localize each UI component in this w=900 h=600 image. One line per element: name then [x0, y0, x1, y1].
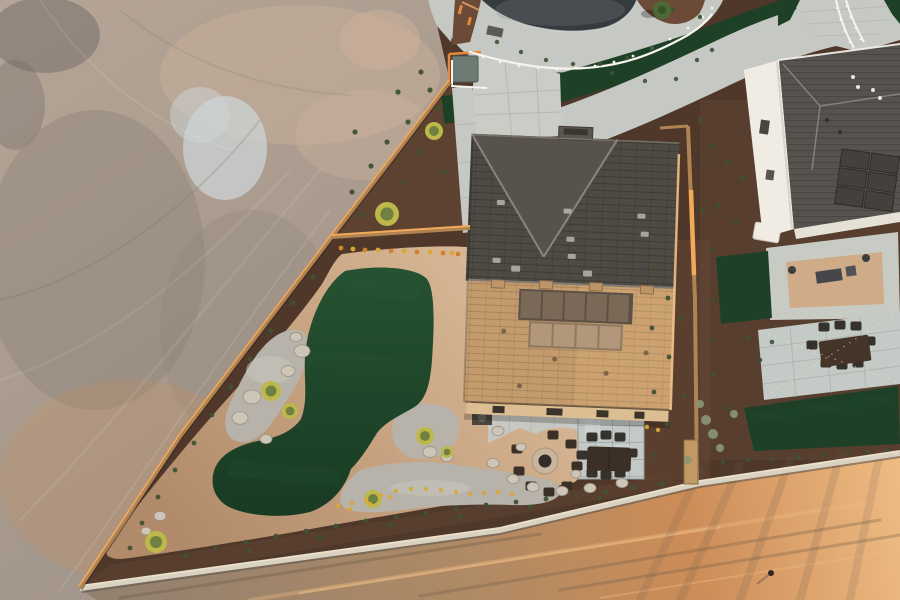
railing-post	[556, 68, 559, 71]
small-plant	[724, 406, 729, 411]
gravel-highlight	[390, 480, 470, 496]
yellow-flower	[454, 490, 458, 494]
neighbor-dining-chair	[851, 322, 862, 331]
small-plant	[248, 357, 253, 362]
yellow-green-shrub	[416, 427, 434, 445]
small-plant	[708, 338, 713, 343]
railing-post	[482, 56, 485, 59]
small-plant	[229, 385, 234, 390]
yellow-flower	[645, 425, 649, 429]
small-plant	[388, 523, 393, 528]
small-plant	[424, 511, 429, 516]
small-plant	[318, 536, 323, 541]
small-plant	[311, 275, 316, 280]
small-plant	[758, 358, 763, 363]
small-plant	[702, 158, 707, 163]
solar-panel-array-lower	[528, 321, 623, 351]
yellow-flower	[368, 502, 372, 506]
small-plant	[712, 373, 717, 378]
yellow-flower	[388, 495, 392, 499]
fire-pit-chair	[514, 467, 525, 476]
neighbor-dining-chair	[807, 341, 818, 350]
fire-pit-chair	[572, 462, 583, 471]
ramp-post	[836, 7, 839, 10]
small-plant	[884, 448, 888, 452]
ramp-post	[855, 27, 858, 30]
small-plant	[708, 248, 713, 253]
neighbor-dining-chair	[819, 323, 830, 332]
boulder	[260, 434, 272, 443]
small-plant	[269, 329, 274, 334]
small-plant	[192, 441, 197, 446]
yellow-flower	[424, 487, 428, 491]
yellow-flower	[379, 493, 383, 497]
yellow-flower	[402, 249, 407, 254]
small-plant	[667, 355, 672, 360]
small-plant	[394, 515, 399, 520]
small-plant	[574, 494, 579, 499]
railing-post	[537, 67, 540, 70]
small-plant	[625, 56, 629, 60]
small-plant	[698, 15, 702, 19]
fire-pit-chair	[548, 431, 559, 440]
small-plant	[334, 524, 339, 529]
fire-pit-chair	[544, 488, 555, 497]
small-plant	[598, 496, 603, 501]
railing-post	[711, 7, 714, 10]
small-plant	[665, 422, 670, 427]
small-plant	[528, 505, 533, 510]
small-plant	[716, 203, 721, 208]
boulder	[556, 486, 568, 495]
small-plant	[441, 169, 446, 174]
small-plant	[653, 266, 658, 271]
small-plant	[746, 458, 750, 462]
small-plant	[484, 503, 489, 508]
dining-chair	[577, 451, 588, 460]
small-plant	[359, 212, 364, 217]
yellow-flower	[394, 489, 398, 493]
small-plant	[405, 119, 410, 124]
yellow-flower	[428, 250, 433, 255]
yellow-flower	[409, 487, 413, 491]
dining-chair	[615, 433, 626, 442]
small-plant	[682, 394, 687, 399]
grill-cart	[845, 265, 856, 276]
small-plant	[248, 549, 253, 554]
sage-plant	[716, 444, 724, 452]
orange-flower	[389, 249, 394, 254]
small-plant	[214, 546, 219, 551]
small-plant	[427, 87, 432, 92]
yellow-flower	[496, 490, 500, 494]
small-plant	[368, 163, 373, 168]
fire-pit-chair	[566, 440, 577, 449]
boulder	[492, 426, 504, 435]
yellow-green-shrub	[375, 202, 399, 226]
small-plant	[796, 455, 800, 459]
yellow-flower	[350, 501, 354, 505]
aerial-photo: Aerial drone view at golden hour of a ne…	[0, 0, 900, 600]
yellow-green-shrub	[145, 531, 167, 553]
orange-flower	[415, 250, 420, 255]
small-plant	[821, 453, 825, 457]
small-plant	[746, 336, 751, 341]
small-plant	[544, 497, 549, 502]
neighbor-dining-chair	[835, 321, 846, 330]
railing-post	[575, 67, 578, 70]
small-plant	[604, 490, 609, 495]
small-plant	[679, 316, 684, 321]
yellow-flower	[351, 247, 356, 252]
orange-flower	[363, 248, 368, 253]
small-plant	[660, 482, 665, 487]
small-plant	[304, 529, 309, 534]
small-plant	[435, 105, 440, 110]
boulder	[281, 366, 295, 377]
small-plant	[184, 553, 189, 558]
small-plant	[651, 453, 656, 458]
boulder	[571, 470, 581, 478]
yellow-green-shrub	[441, 446, 453, 458]
small-plant	[349, 189, 354, 194]
small-plant	[701, 208, 706, 213]
small-plant	[140, 521, 145, 526]
small-plant	[671, 8, 675, 12]
railing-post	[687, 27, 690, 30]
small-plant	[274, 534, 279, 539]
small-plant	[544, 58, 548, 62]
small-plant	[662, 238, 667, 243]
yellow-flower	[468, 492, 472, 496]
fire-pit-bowl	[539, 455, 552, 468]
small-plant	[128, 546, 133, 551]
small-plant	[571, 62, 575, 66]
yellow-green-shrub	[261, 381, 281, 401]
small-plant	[156, 495, 161, 500]
small-plant	[210, 413, 215, 418]
small-plant	[734, 220, 739, 225]
yellow-flower	[376, 248, 381, 253]
roof-cricket-vent	[564, 128, 588, 135]
dining-chair	[587, 433, 598, 442]
yellow-flower	[348, 507, 352, 511]
fence-return	[660, 126, 688, 128]
yellow-flower	[364, 498, 368, 502]
small-plant	[610, 71, 614, 75]
dining-chair	[601, 471, 612, 480]
small-plant	[598, 62, 602, 66]
ramp-post	[846, 5, 849, 8]
neighbor-house	[744, 44, 900, 239]
small-plant	[710, 144, 715, 149]
main-house	[460, 123, 682, 428]
patio-chair	[862, 254, 870, 262]
small-plant	[650, 326, 655, 331]
sage-plant	[708, 429, 718, 439]
small-plant	[740, 176, 745, 181]
small-plant	[674, 77, 678, 81]
small-plant	[401, 179, 406, 184]
dark-object-on-road	[768, 570, 774, 576]
small-plant	[384, 139, 389, 144]
orange-flower	[456, 252, 461, 257]
boulder	[243, 390, 261, 404]
orange-flower	[339, 246, 344, 251]
ramp-post	[844, 30, 847, 33]
small-plant	[352, 129, 357, 134]
small-plant	[495, 40, 499, 44]
boulder	[527, 482, 539, 491]
yellow-flower	[439, 488, 443, 492]
small-plant	[650, 46, 654, 50]
boulder	[507, 474, 519, 483]
small-plant	[770, 340, 775, 345]
patio-chair	[788, 266, 796, 274]
railing-post	[594, 65, 597, 68]
small-plant	[364, 519, 369, 524]
small-plant	[771, 457, 775, 461]
boulder	[423, 447, 437, 458]
small-plant	[725, 160, 730, 165]
yellow-flower	[336, 504, 340, 508]
small-plant	[695, 58, 699, 62]
sage-plant	[730, 410, 738, 418]
railing-post	[669, 38, 672, 41]
boulder	[154, 511, 166, 520]
small-plant	[710, 48, 714, 52]
boulder	[487, 458, 499, 467]
yellow-flower	[510, 492, 514, 496]
small-plant	[173, 468, 178, 473]
small-plant	[514, 500, 519, 505]
small-plant	[458, 515, 463, 520]
boulder	[290, 332, 302, 341]
small-plant	[846, 451, 850, 455]
dirt-pale-patch	[170, 87, 230, 143]
small-plant	[418, 69, 423, 74]
small-plant	[652, 390, 657, 395]
small-plant	[244, 540, 249, 545]
boulder	[616, 478, 628, 487]
solar-panel-array-upper	[518, 289, 633, 325]
ramp-post	[849, 41, 852, 44]
sage-plant	[684, 456, 692, 464]
ramp-post	[840, 19, 843, 22]
yellow-flower	[482, 491, 486, 495]
small-plant	[643, 79, 647, 83]
sage-plant	[696, 400, 704, 408]
ramp-post	[850, 16, 853, 19]
dining-chair	[601, 431, 612, 440]
railing-post	[632, 55, 635, 58]
small-plant	[666, 296, 671, 301]
ramp-post	[860, 38, 863, 41]
railing-post	[469, 51, 472, 54]
driveway	[468, 58, 562, 141]
small-plant	[866, 450, 870, 454]
sage-plant	[701, 415, 711, 425]
aerial-photo-canvas: Aerial drone view at golden hour of a ne…	[0, 0, 900, 600]
boulder	[584, 483, 596, 492]
dirt-light-patch	[340, 10, 420, 70]
neighbor-window	[765, 169, 774, 180]
small-tree-core	[658, 6, 666, 14]
small-plant	[721, 460, 725, 464]
utility-kiosk	[452, 56, 478, 82]
railing-post	[518, 65, 521, 68]
orange-flower	[441, 251, 446, 256]
property-fence-lit	[691, 190, 694, 275]
small-plant	[416, 149, 421, 154]
neighbor-turf-upper	[716, 251, 772, 324]
boulder	[516, 443, 526, 451]
railing-post	[499, 61, 502, 64]
small-plant	[395, 89, 400, 94]
boulder	[232, 412, 248, 424]
yellow-flower	[450, 251, 455, 256]
yellow-green-shrub	[282, 403, 298, 419]
yellow-flower	[656, 428, 660, 432]
small-plant	[291, 301, 296, 306]
small-plant	[454, 507, 459, 512]
small-plant	[710, 298, 715, 303]
small-plant	[519, 50, 523, 54]
railing-post	[613, 61, 616, 64]
small-plant	[632, 486, 637, 491]
yellow-green-shrub	[425, 122, 443, 140]
small-plant	[698, 118, 703, 123]
boulder	[294, 345, 310, 357]
